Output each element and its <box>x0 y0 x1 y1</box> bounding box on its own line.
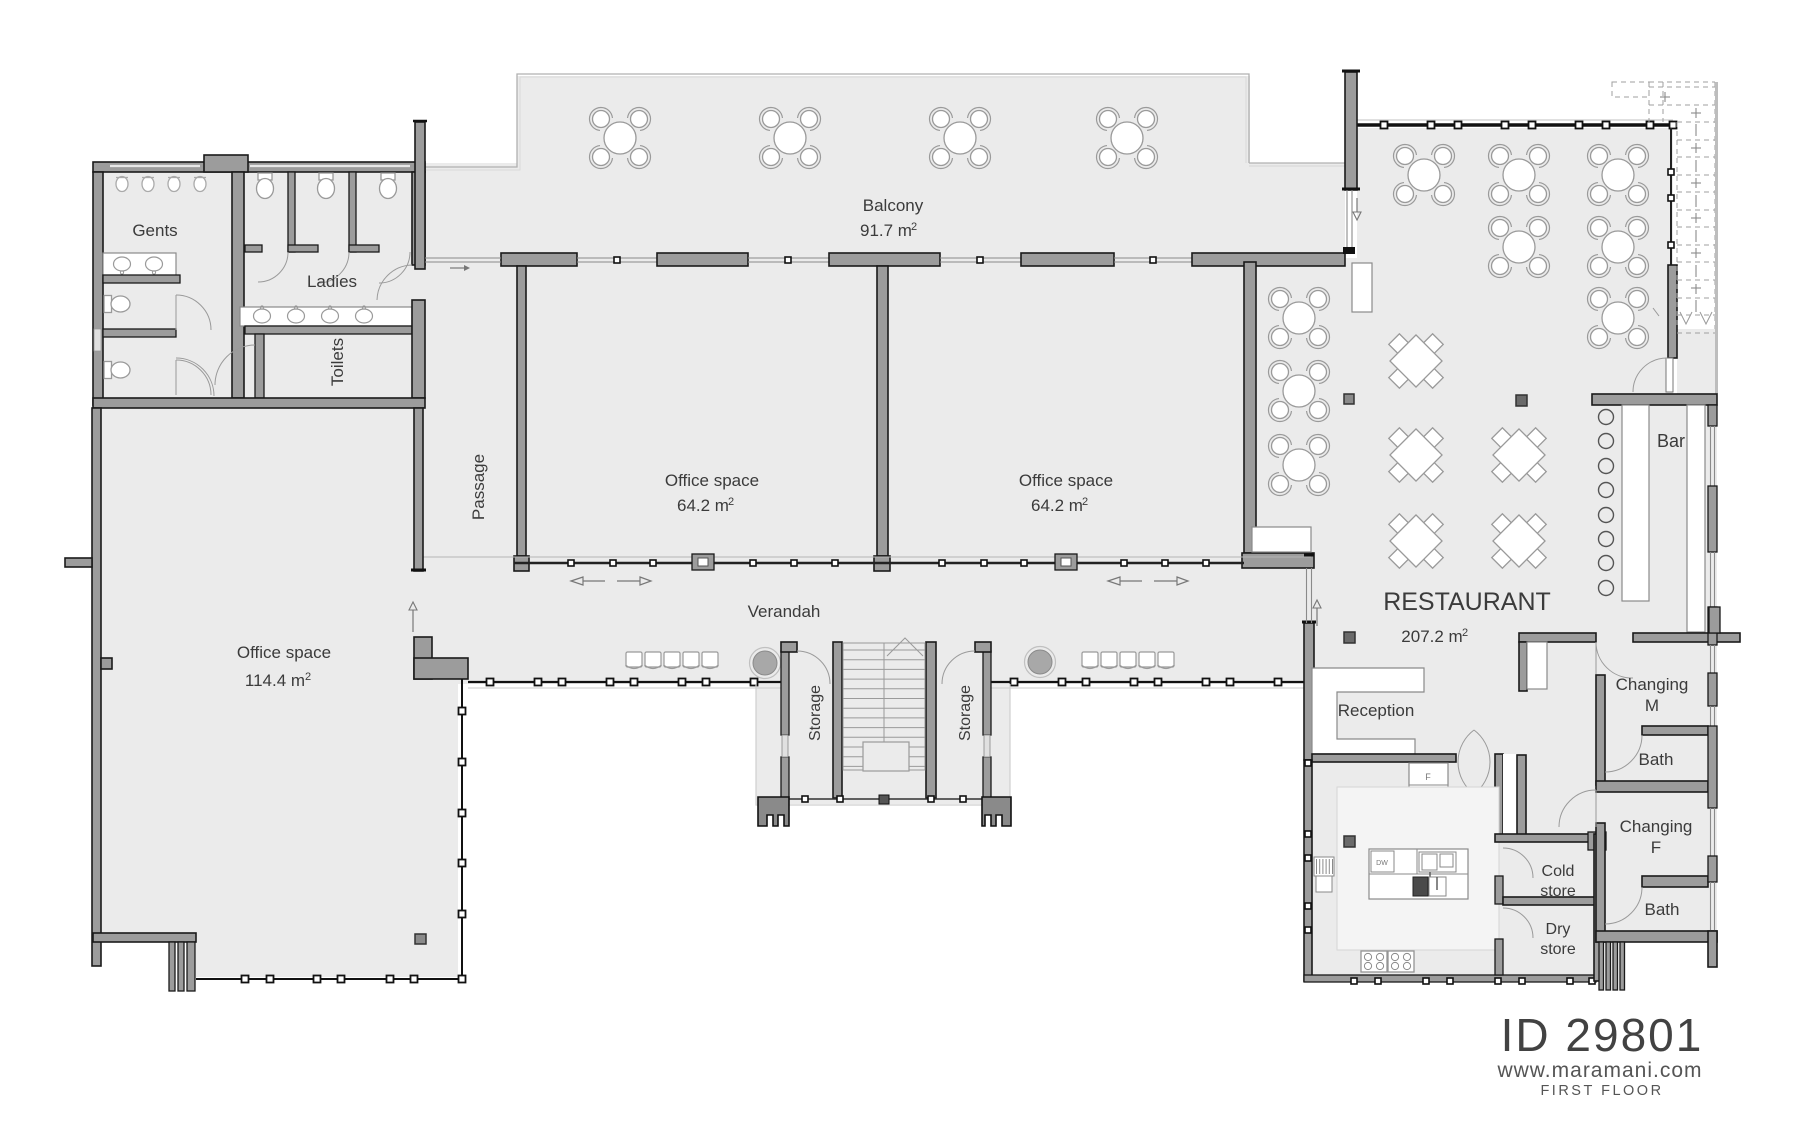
svg-text:64.2 m: 64.2 m <box>677 496 729 515</box>
svg-text:Passage: Passage <box>469 454 488 520</box>
svg-text:2: 2 <box>728 496 734 508</box>
svg-text:2: 2 <box>1462 627 1468 639</box>
svg-text:Office space: Office space <box>1019 471 1113 490</box>
svg-text:Changing: Changing <box>1616 675 1689 694</box>
svg-text:2: 2 <box>1082 496 1088 508</box>
svg-text:M: M <box>1645 696 1659 715</box>
svg-text:FIRST FLOOR: FIRST FLOOR <box>1540 1083 1663 1099</box>
svg-text:Ladies: Ladies <box>307 272 357 291</box>
svg-text:64.2 m: 64.2 m <box>1031 496 1083 515</box>
svg-text:2: 2 <box>911 221 917 233</box>
svg-text:store: store <box>1540 941 1576 958</box>
svg-text:Reception: Reception <box>1338 701 1415 720</box>
svg-text:Bar: Bar <box>1657 431 1685 451</box>
svg-text:Verandah: Verandah <box>748 602 821 621</box>
svg-text:Office space: Office space <box>665 471 759 490</box>
svg-text:F: F <box>1651 838 1661 857</box>
svg-text:91.7 m: 91.7 m <box>860 221 912 240</box>
svg-text:www.maramani.com: www.maramani.com <box>1496 1059 1702 1082</box>
svg-text:Gents: Gents <box>132 221 177 240</box>
svg-text:Toilets: Toilets <box>328 338 347 386</box>
svg-text:Bath: Bath <box>1645 900 1680 919</box>
svg-text:Dry: Dry <box>1546 921 1571 938</box>
svg-text:207.2 m: 207.2 m <box>1401 627 1462 646</box>
svg-text:RESTAURANT: RESTAURANT <box>1383 588 1551 616</box>
svg-text:Bath: Bath <box>1639 750 1674 769</box>
svg-text:114.4 m: 114.4 m <box>245 671 305 690</box>
svg-text:Cold: Cold <box>1542 863 1575 880</box>
svg-text:Changing: Changing <box>1620 817 1693 836</box>
svg-text:Storage: Storage <box>957 685 974 741</box>
svg-text:Storage: Storage <box>807 685 824 741</box>
svg-text:F: F <box>1425 772 1431 782</box>
svg-text:Office space: Office space <box>237 643 331 662</box>
svg-text:DW: DW <box>1376 860 1388 867</box>
svg-text:ID 29801: ID 29801 <box>1501 1009 1704 1061</box>
svg-text:2: 2 <box>305 671 311 683</box>
svg-text:Balcony: Balcony <box>863 196 924 215</box>
